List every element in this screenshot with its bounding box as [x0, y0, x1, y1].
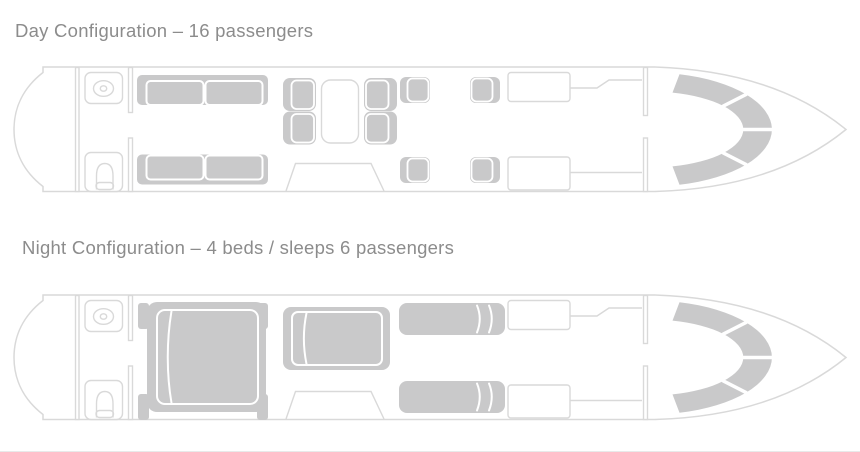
single-berth-lower [399, 381, 505, 413]
sofa-upper [137, 75, 268, 105]
single-seat [400, 77, 430, 103]
single-seat [470, 157, 500, 183]
night-configuration-floorplan [14, 295, 846, 420]
club-seat [283, 112, 316, 145]
single-seat [400, 157, 430, 183]
aircraft-floorplans [0, 0, 860, 452]
cabin-configuration-page: Day Configuration – 16 passengers Night … [0, 0, 860, 452]
double-bed-mid [283, 307, 390, 370]
dining-table [322, 80, 359, 143]
day-configuration-floorplan [14, 67, 846, 192]
sofa-lower [137, 155, 268, 185]
club-seat [364, 78, 397, 111]
club-seat [283, 78, 316, 111]
club-seat [364, 112, 397, 145]
single-seat [470, 77, 500, 103]
single-berth-upper [399, 303, 505, 335]
double-bed-aft [138, 302, 268, 420]
